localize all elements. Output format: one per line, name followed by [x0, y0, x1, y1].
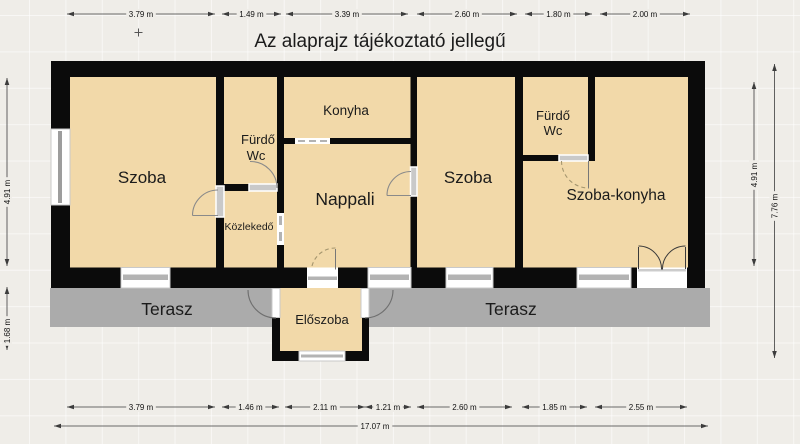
svg-text:4.91 m: 4.91 m [3, 179, 12, 204]
svg-text:Szoba-konyha: Szoba-konyha [566, 187, 665, 204]
svg-text:1.68 m: 1.68 m [3, 318, 12, 343]
svg-text:7.76 m: 7.76 m [771, 193, 780, 218]
svg-text:2.60 m: 2.60 m [452, 403, 477, 412]
svg-text:Wc: Wc [544, 123, 563, 138]
svg-text:Konyha: Konyha [323, 103, 369, 118]
svg-text:2.60 m: 2.60 m [455, 10, 480, 19]
svg-text:Az alaprajz tájékoztató jelleg: Az alaprajz tájékoztató jellegű [254, 31, 505, 52]
svg-text:1.21 m: 1.21 m [376, 403, 401, 412]
svg-text:1.80 m: 1.80 m [546, 10, 571, 19]
svg-text:Szoba: Szoba [118, 168, 167, 187]
svg-text:Fürdő: Fürdő [241, 132, 275, 147]
svg-text:Terasz: Terasz [141, 299, 193, 319]
svg-text:Nappali: Nappali [315, 189, 374, 209]
svg-text:17.07 m: 17.07 m [361, 422, 390, 431]
svg-text:3.79 m: 3.79 m [129, 403, 154, 412]
svg-text:Közlekedő: Közlekedő [224, 221, 273, 233]
svg-text:Fürdő: Fürdő [536, 108, 570, 123]
svg-text:2.00 m: 2.00 m [633, 10, 658, 19]
svg-text:1.49 m: 1.49 m [239, 10, 264, 19]
svg-text:Terasz: Terasz [485, 299, 537, 319]
svg-text:3.79 m: 3.79 m [129, 10, 154, 19]
svg-text:1.85 m: 1.85 m [542, 403, 567, 412]
svg-text:3.39 m: 3.39 m [335, 10, 360, 19]
svg-text:2.11 m: 2.11 m [313, 403, 337, 412]
svg-text:2.55 m: 2.55 m [629, 403, 654, 412]
svg-text:Szoba: Szoba [444, 168, 493, 187]
svg-text:Wc: Wc [247, 148, 266, 163]
svg-text:Előszoba: Előszoba [295, 312, 349, 327]
svg-text:4.91 m: 4.91 m [750, 162, 759, 187]
svg-text:1.46 m: 1.46 m [238, 403, 263, 412]
